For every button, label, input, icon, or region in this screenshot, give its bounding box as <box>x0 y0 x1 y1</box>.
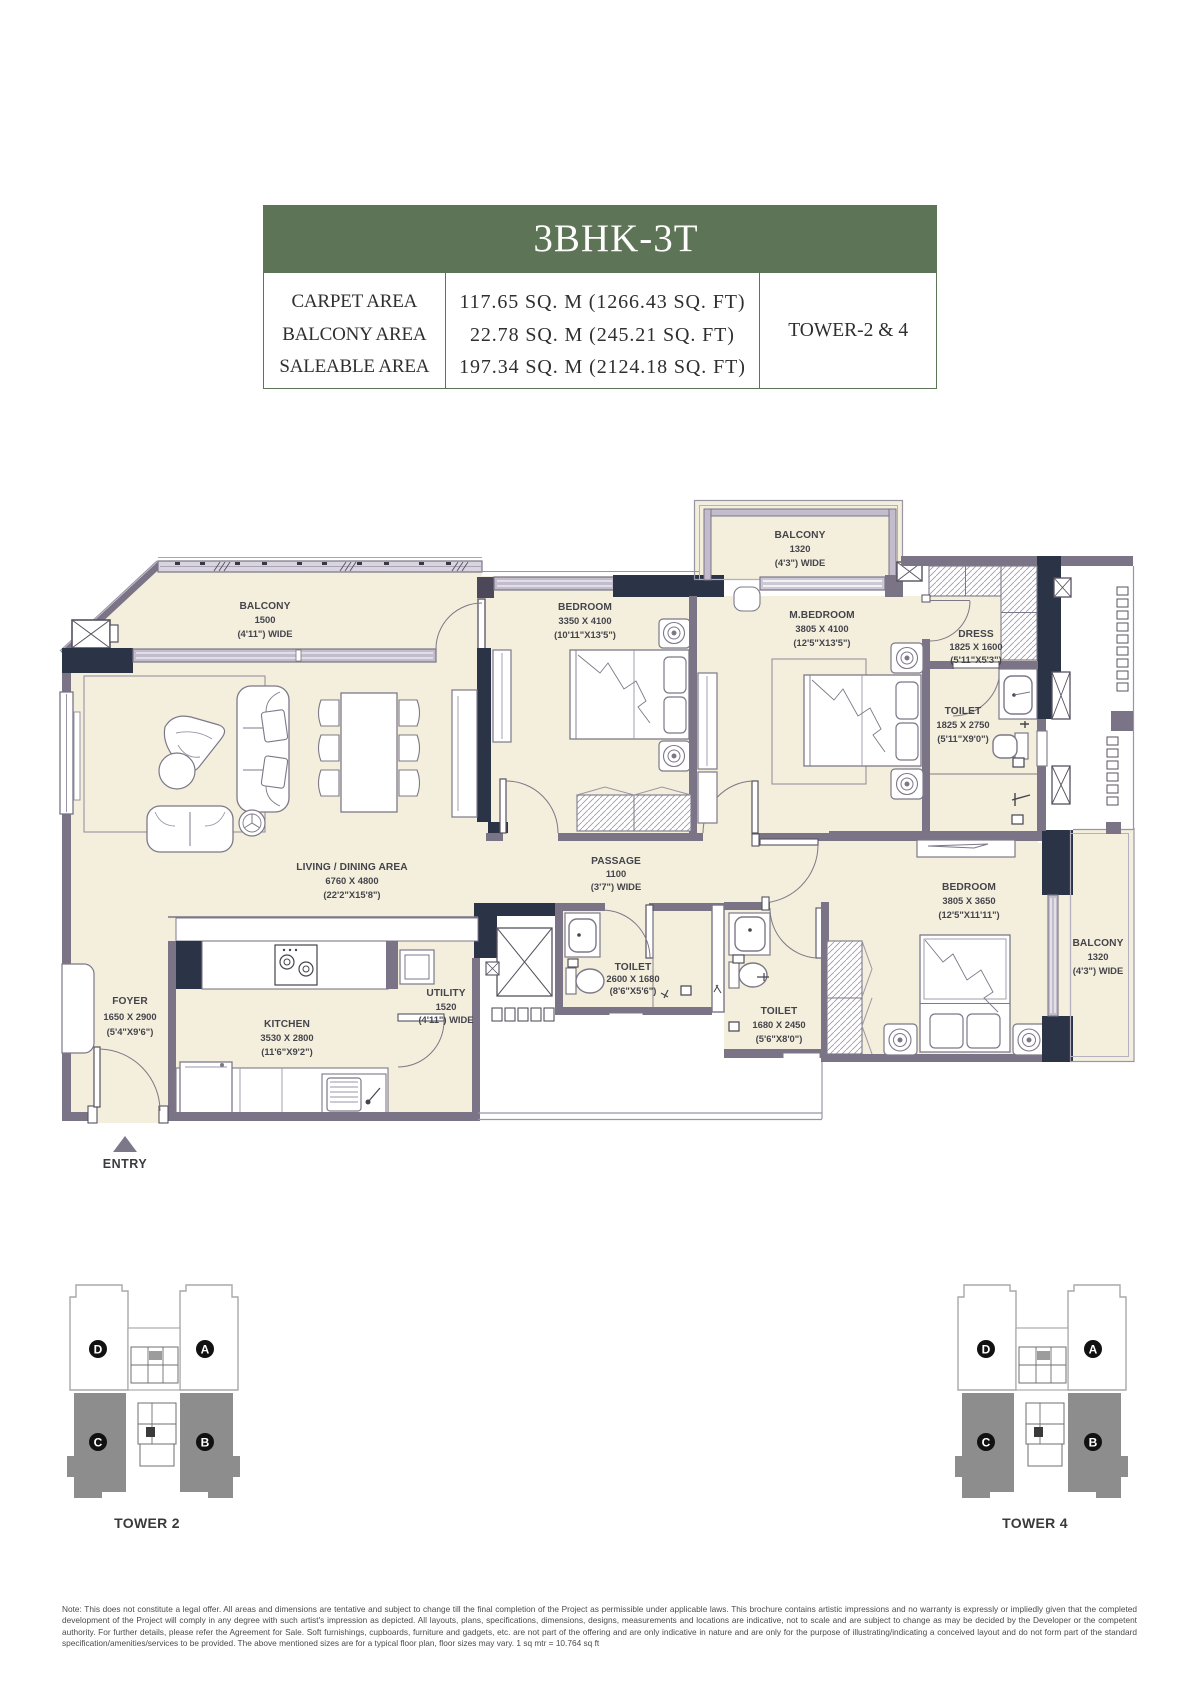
svg-text:D: D <box>94 1343 103 1357</box>
svg-text:KITCHEN: KITCHEN <box>264 1019 310 1030</box>
svg-text:TOILET: TOILET <box>945 706 982 717</box>
svg-text:6760 X 4800: 6760 X 4800 <box>325 875 378 886</box>
svg-text:BEDROOM: BEDROOM <box>558 602 612 613</box>
svg-text:3805 X 4100: 3805 X 4100 <box>795 623 848 634</box>
svg-text:1520: 1520 <box>436 1001 457 1012</box>
svg-text:UTILITY: UTILITY <box>426 988 465 999</box>
svg-text:(12'5"X11'11"): (12'5"X11'11") <box>938 909 999 920</box>
svg-text:TOILET: TOILET <box>761 1006 798 1017</box>
svg-text:(4'11") WIDE: (4'11") WIDE <box>418 1014 473 1025</box>
svg-text:LIVING / DINING AREA: LIVING / DINING AREA <box>296 862 408 873</box>
svg-text:BEDROOM: BEDROOM <box>942 882 996 893</box>
svg-text:(11'6"X9'2"): (11'6"X9'2") <box>261 1046 312 1057</box>
svg-text:3530 X 2800: 3530 X 2800 <box>260 1032 313 1043</box>
svg-text:PASSAGE: PASSAGE <box>591 856 641 867</box>
svg-text:1650 X 2900: 1650 X 2900 <box>103 1011 156 1022</box>
svg-text:(5'11"X5'3"): (5'11"X5'3") <box>950 654 1001 665</box>
svg-text:(4'11") WIDE: (4'11") WIDE <box>237 628 292 639</box>
svg-text:M.BEDROOM: M.BEDROOM <box>789 610 854 621</box>
svg-text:(4'3") WIDE: (4'3") WIDE <box>1073 965 1123 976</box>
svg-text:1500: 1500 <box>255 614 276 625</box>
svg-text:2600 X 1680: 2600 X 1680 <box>606 973 659 984</box>
svg-text:(3'7") WIDE: (3'7") WIDE <box>591 881 641 892</box>
svg-text:3350 X 4100: 3350 X 4100 <box>558 615 611 626</box>
svg-text:(8'6"X5'6"): (8'6"X5'6") <box>610 985 657 996</box>
svg-text:(22'2"X15'8"): (22'2"X15'8") <box>323 889 380 900</box>
svg-text:(12'5"X13'5"): (12'5"X13'5") <box>793 637 850 648</box>
svg-text:1825 X 2750: 1825 X 2750 <box>936 719 989 730</box>
svg-text:1320: 1320 <box>1088 951 1109 962</box>
svg-text:(10'11"X13'5"): (10'11"X13'5") <box>554 629 616 640</box>
svg-text:C: C <box>94 1436 103 1450</box>
svg-text:(4'3") WIDE: (4'3") WIDE <box>775 557 825 568</box>
svg-text:BALCONY: BALCONY <box>774 530 825 541</box>
svg-text:DRESS: DRESS <box>958 629 994 640</box>
svg-text:(5'11"X9'0"): (5'11"X9'0") <box>937 733 988 744</box>
svg-text:(5'6"X8'0"): (5'6"X8'0") <box>756 1033 803 1044</box>
svg-text:1320: 1320 <box>790 543 811 554</box>
svg-text:BALCONY: BALCONY <box>1072 938 1123 949</box>
svg-text:BALCONY: BALCONY <box>239 601 290 612</box>
svg-text:B: B <box>201 1436 210 1450</box>
svg-text:1680 X 2450: 1680 X 2450 <box>752 1019 805 1030</box>
svg-text:TOWER 4: TOWER 4 <box>1002 1515 1068 1531</box>
svg-text:TOILET: TOILET <box>615 962 652 973</box>
svg-text:3805 X 3650: 3805 X 3650 <box>942 895 995 906</box>
svg-text:TOWER 2: TOWER 2 <box>114 1515 180 1531</box>
svg-text:1825 X 1600: 1825 X 1600 <box>949 641 1002 652</box>
svg-text:ENTRY: ENTRY <box>103 1157 148 1171</box>
svg-text:1100: 1100 <box>606 868 626 879</box>
svg-text:(5'4"X9'6"): (5'4"X9'6") <box>107 1026 154 1037</box>
svg-text:FOYER: FOYER <box>112 996 148 1007</box>
svg-text:A: A <box>201 1343 210 1357</box>
